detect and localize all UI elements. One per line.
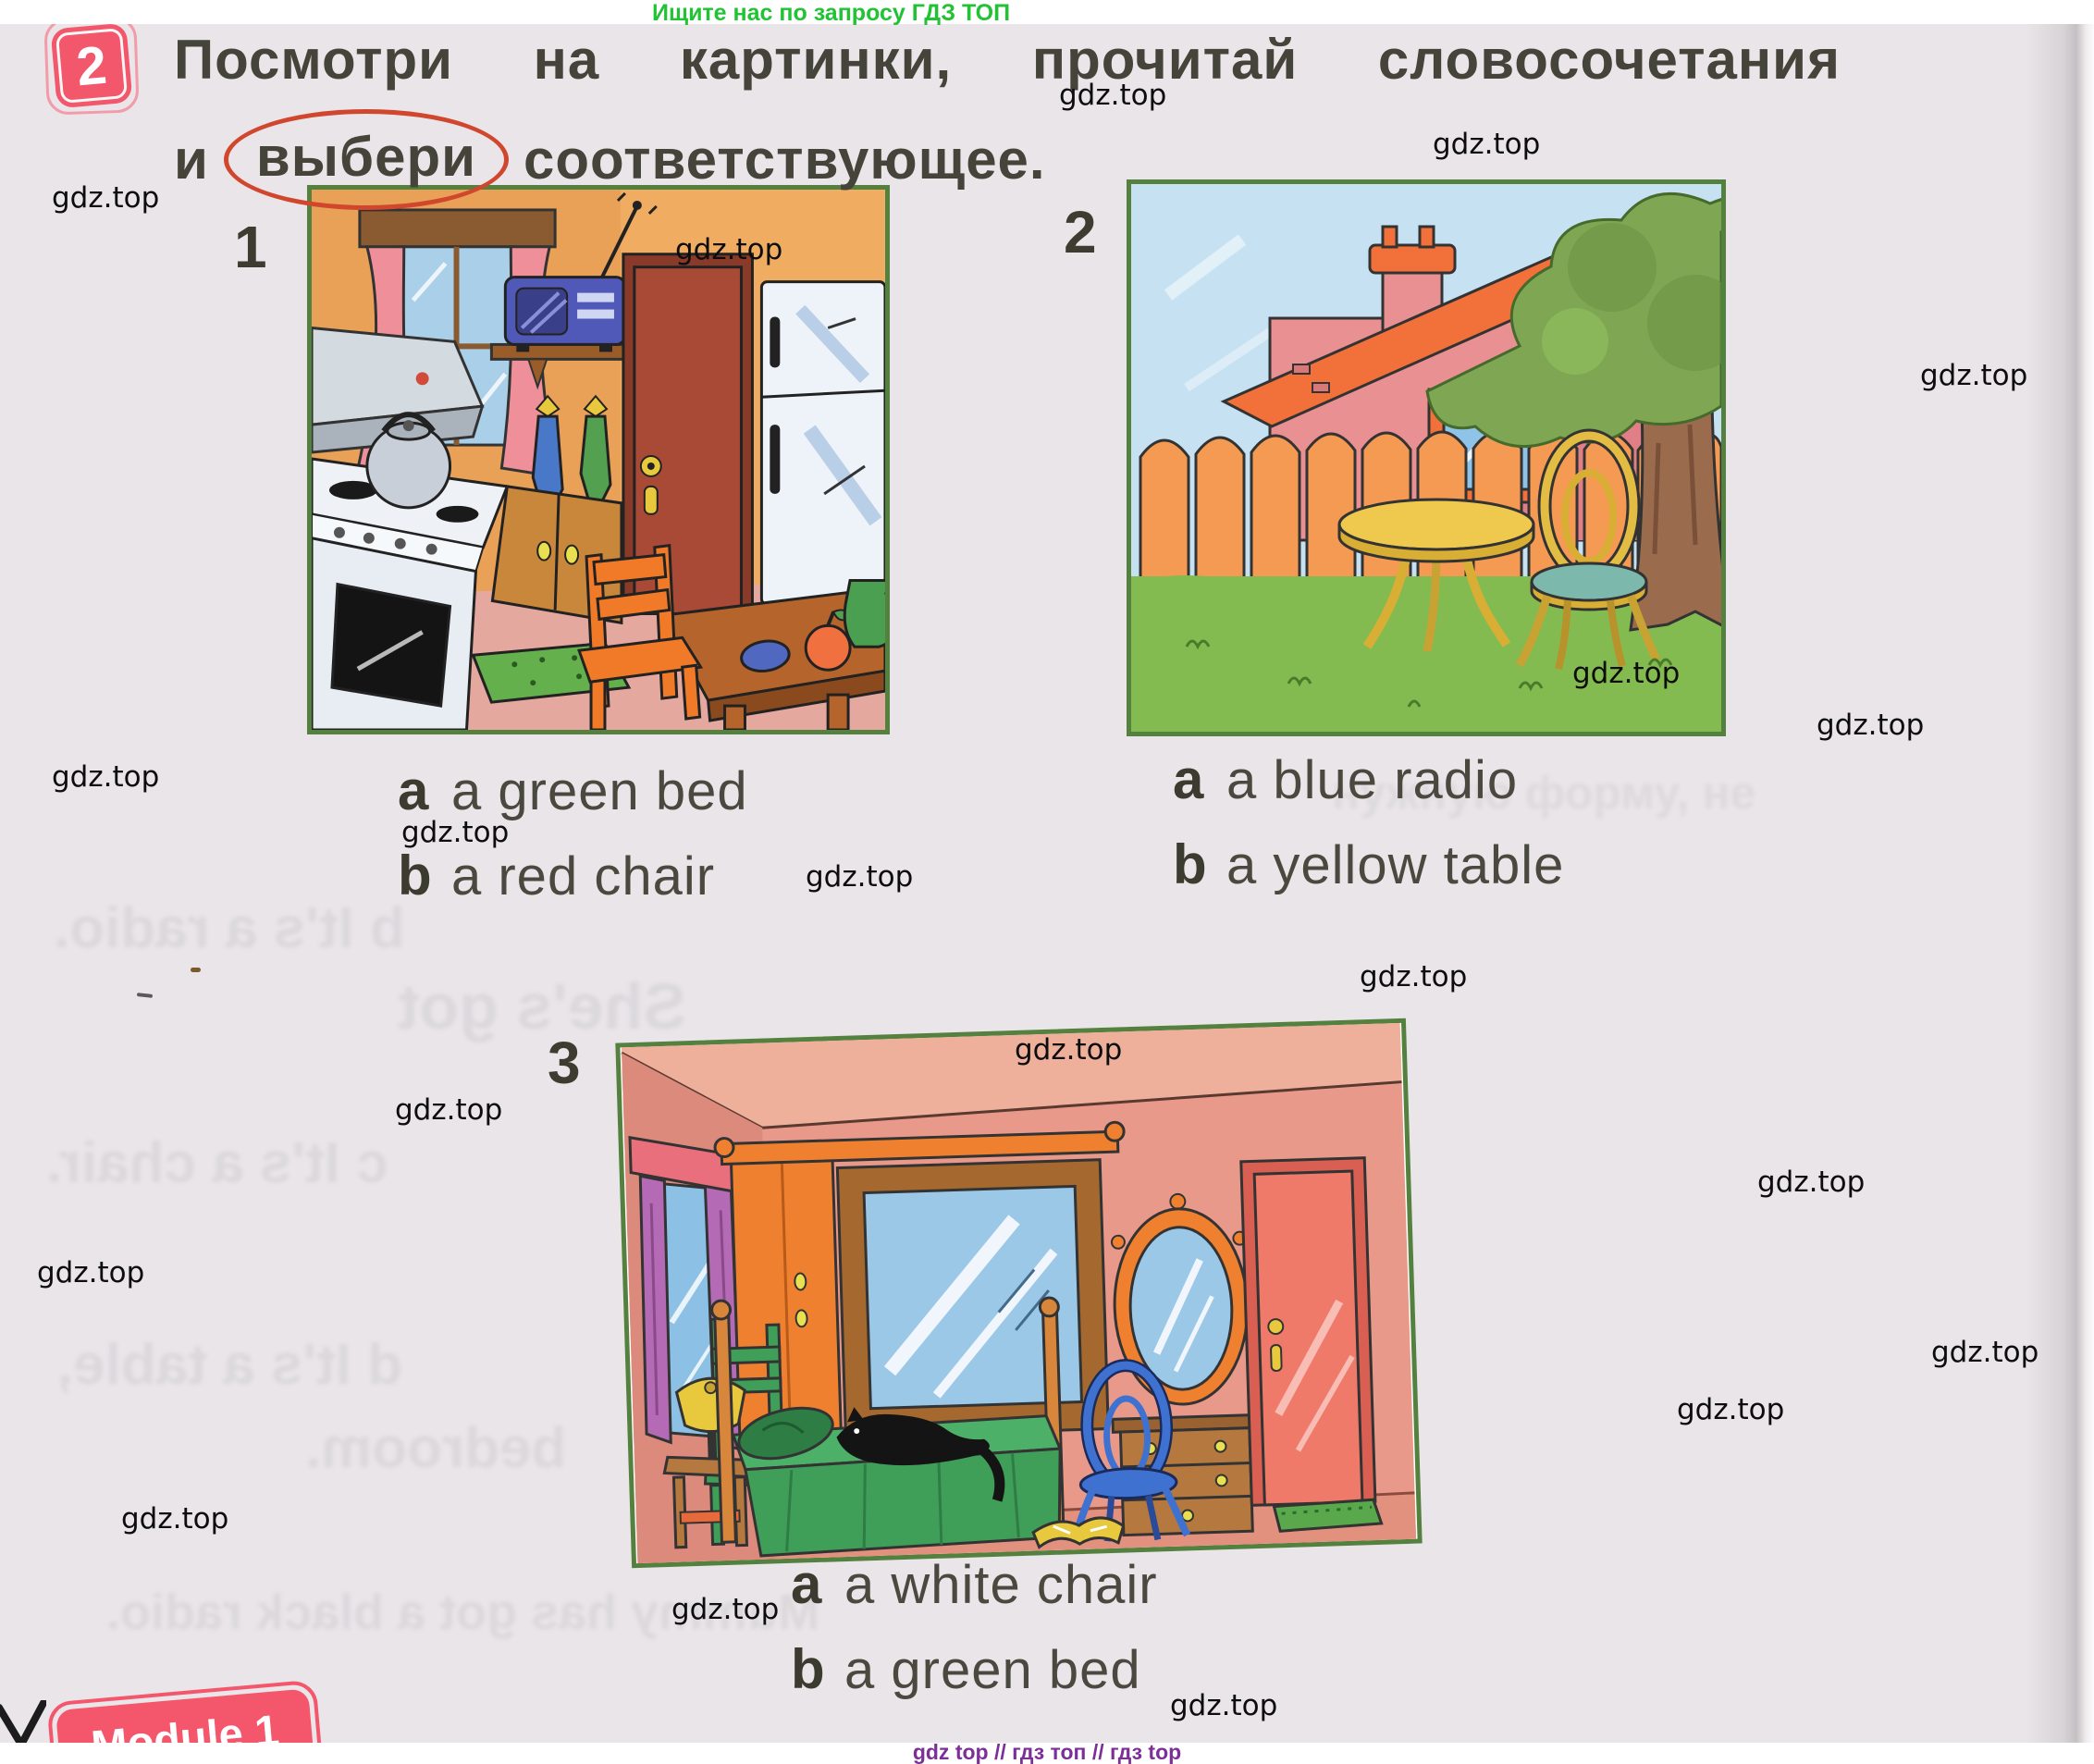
watermark-gdz-top: gdz.top — [1170, 1689, 1277, 1722]
watermark-gdz-top: gdz.top — [1015, 1033, 1122, 1067]
option-letter: b — [398, 844, 451, 907]
instruction-prefix: и — [174, 128, 209, 191]
option-text: a green bed — [451, 760, 748, 822]
instruction-line2: и выбери соответствующее. — [174, 109, 1046, 210]
picture-1-label: 1 — [234, 213, 267, 281]
bedroom-wardrobe — [731, 1156, 841, 1445]
option-2a: a a blue radio — [1173, 747, 1564, 833]
option-text: a red chair — [451, 845, 715, 907]
watermark-gdz-top: gdz.top — [1817, 709, 1924, 742]
picture-3-bedroom — [615, 1018, 1422, 1569]
ghost-text: d It's a table, — [57, 1332, 402, 1398]
option-letter: a — [398, 759, 451, 822]
kitchen-fridge — [761, 282, 885, 605]
scan-speck — [191, 968, 201, 972]
option-2b: b a yellow table — [1173, 833, 1564, 918]
instruction-suffix: соответствующее. — [523, 128, 1046, 191]
watermark-gdz-top: gdz.top — [1757, 1166, 1865, 1199]
option-text: a white chair — [844, 1554, 1158, 1616]
ghost-text: b It's a radio. — [54, 895, 405, 961]
watermark-gdz-top: gdz.top — [395, 1093, 502, 1127]
watermark-gdz-top: gdz.top — [1572, 657, 1680, 690]
watermark-gdz-top: gdz.top — [1433, 128, 1540, 161]
option-3b: b a green bed — [791, 1637, 1158, 1722]
bottom-banner-text: gdz top // гдз топ // гдз top — [0, 1740, 2094, 1764]
picture-2-label: 2 — [1064, 198, 1097, 266]
watermark-gdz-top: gdz.top — [37, 1256, 144, 1289]
watermark-gdz-top: gdz.top — [52, 760, 159, 794]
watermark-gdz-top: gdz.top — [1920, 359, 2027, 392]
options-item-3: a a white chair b a green bed — [791, 1552, 1158, 1722]
bottom-banner: gdz top // гдз топ // гдз top — [0, 1743, 2094, 1764]
picture-2-garden — [1127, 179, 1726, 736]
option-text: a yellow table — [1226, 834, 1564, 896]
top-banner: Ищите нас по запросу ГДЗ ТОП — [0, 0, 2094, 24]
watermark-gdz-top: gdz.top — [1059, 79, 1166, 112]
watermark-gdz-top: gdz.top — [806, 860, 913, 894]
option-3a: a a white chair — [791, 1552, 1158, 1637]
option-letter: b — [1173, 833, 1226, 896]
option-letter: a — [1173, 747, 1226, 811]
page-edge-shadow — [2026, 24, 2094, 1743]
scanned-textbook-page: b It's a radio. She's got c It's a chair… — [0, 0, 2094, 1764]
watermark-gdz-top: gdz.top — [121, 1502, 228, 1536]
watermark-gdz-top: gdz.top — [52, 181, 159, 215]
ghost-text: c It's a chair. — [46, 1130, 388, 1196]
watermark-gdz-top: gdz.top — [671, 1593, 779, 1626]
picture-3-label: 3 — [548, 1029, 581, 1097]
exercise-number-badge: 2 — [50, 23, 132, 109]
top-banner-text: Ищите нас по запросу ГДЗ ТОП — [652, 0, 1010, 27]
option-1b: b a red chair — [398, 844, 748, 929]
option-letter: a — [791, 1552, 844, 1616]
watermark-gdz-top: gdz.top — [1677, 1393, 1784, 1426]
option-text: a blue radio — [1226, 749, 1518, 811]
picture-1-kitchen — [307, 185, 890, 734]
options-item-2: a a blue radio b a yellow table — [1173, 747, 1564, 918]
option-text: a green bed — [844, 1639, 1141, 1701]
watermark-gdz-top: gdz.top — [401, 816, 509, 849]
option-letter: b — [791, 1637, 844, 1701]
instruction-line1: Посмотри на картинки, прочитай словосоче… — [174, 28, 1841, 92]
kitchen-illustration — [312, 190, 885, 730]
garden-illustration — [1131, 184, 1721, 732]
ghost-text: She's got — [398, 969, 686, 1043]
watermark-gdz-top: gdz.top — [1360, 960, 1467, 993]
watermark-gdz-top: gdz.top — [1931, 1336, 2039, 1369]
bedroom-door — [1241, 1158, 1375, 1506]
bedroom-illustration — [620, 1023, 1417, 1563]
ghost-text: bedroom. — [305, 1415, 566, 1481]
circled-word: выбери — [224, 109, 509, 210]
watermark-gdz-top: gdz.top — [675, 233, 782, 266]
